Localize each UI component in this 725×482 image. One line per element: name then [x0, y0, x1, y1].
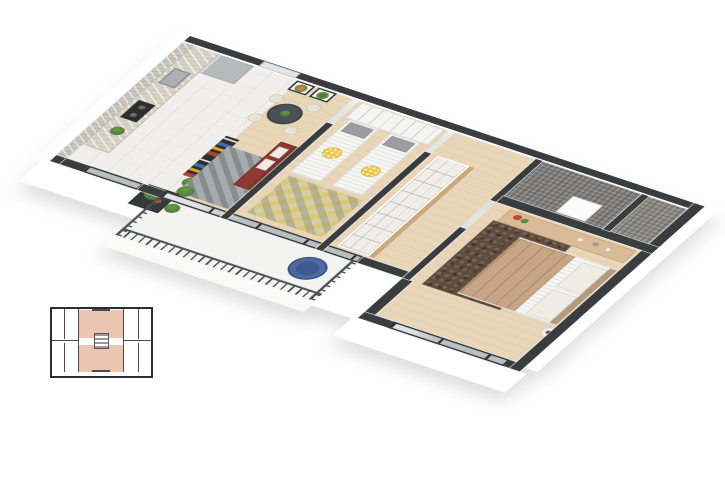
key-plan-wall [138, 343, 139, 372]
key-plan-unit-bottom [79, 345, 123, 372]
key-plan-wall [64, 309, 65, 339]
key-plan-wall [64, 343, 65, 372]
key-plan-tick [92, 370, 110, 372]
key-plan [50, 307, 153, 378]
key-plan-wall [138, 309, 139, 339]
canvas [0, 0, 725, 482]
key-plan-tick [92, 309, 110, 311]
key-plan-staircase [94, 333, 109, 349]
key-plan-corridor [52, 340, 79, 341]
key-plan-corridor [123, 340, 151, 341]
